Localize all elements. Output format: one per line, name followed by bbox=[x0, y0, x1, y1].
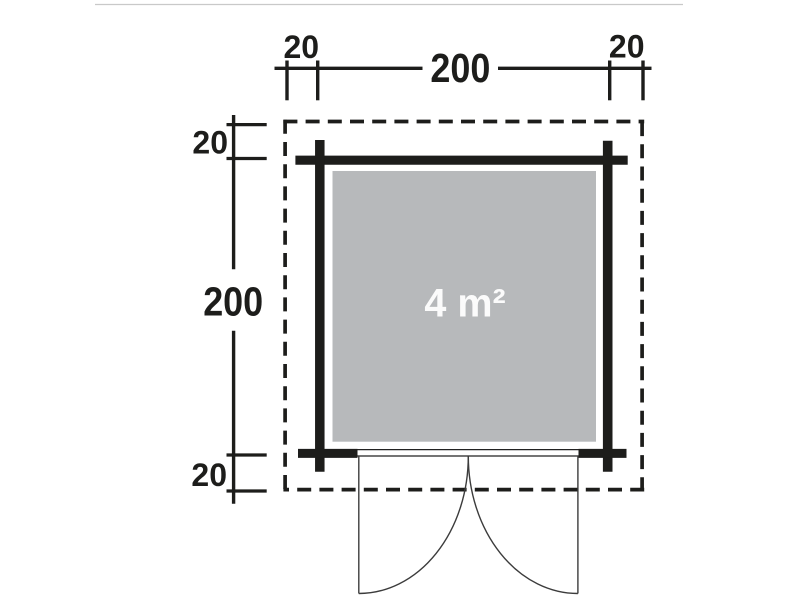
svg-text:20: 20 bbox=[192, 124, 228, 160]
svg-text:200: 200 bbox=[203, 278, 263, 324]
svg-text:20: 20 bbox=[609, 28, 645, 64]
svg-text:20: 20 bbox=[284, 29, 320, 65]
svg-text:20: 20 bbox=[191, 457, 227, 493]
svg-text:4 m²: 4 m² bbox=[424, 282, 505, 326]
svg-text:200: 200 bbox=[430, 45, 490, 91]
